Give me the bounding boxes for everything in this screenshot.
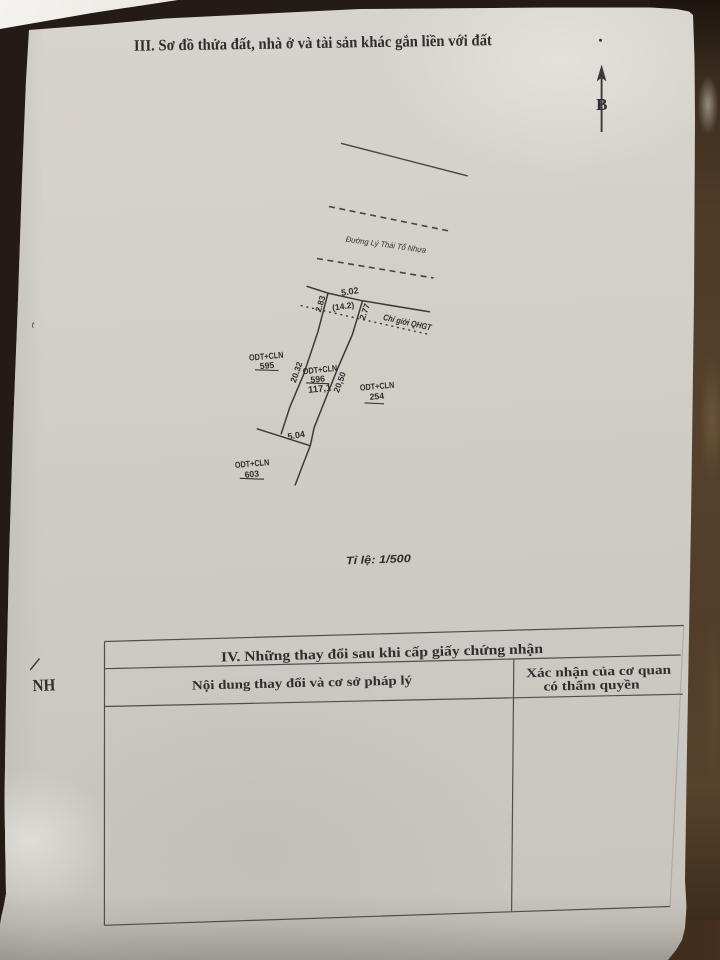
svg-text:t: t [32, 320, 35, 330]
svg-text:(14.2): (14.2) [332, 300, 356, 313]
svg-text:2.77: 2.77 [357, 302, 372, 321]
svg-text:Đường Lý Thái Tổ Nhựa: Đường Lý Thái Tổ Nhựa [345, 235, 427, 255]
svg-text:595: 595 [259, 360, 274, 371]
svg-text:254: 254 [369, 391, 384, 402]
svg-text:NH: NH [32, 675, 55, 695]
svg-text:Nội dung thay đổi và cơ sở phá: Nội dung thay đổi và cơ sở pháp lý [192, 672, 413, 692]
svg-text:2.83: 2.83 [313, 294, 327, 313]
svg-text:ODT+CLN: ODT+CLN [234, 457, 269, 470]
svg-text:III. Sơ đồ thửa đất, nhà ở và: III. Sơ đồ thửa đất, nhà ở và tài sản kh… [134, 32, 493, 55]
svg-text:5.04: 5.04 [287, 429, 306, 442]
svg-text:5.02: 5.02 [340, 285, 359, 298]
svg-text:B: B [596, 95, 607, 114]
svg-text:20,50: 20,50 [331, 370, 348, 394]
svg-text:117,1: 117,1 [308, 383, 333, 396]
svg-text:Chỉ giới QHGT: Chỉ giới QHGT [382, 312, 433, 332]
svg-text:có thẩm quyền: có thẩm quyền [543, 676, 640, 693]
svg-text:Tỉ lệ: 1/500: Tỉ lệ: 1/500 [346, 553, 412, 567]
